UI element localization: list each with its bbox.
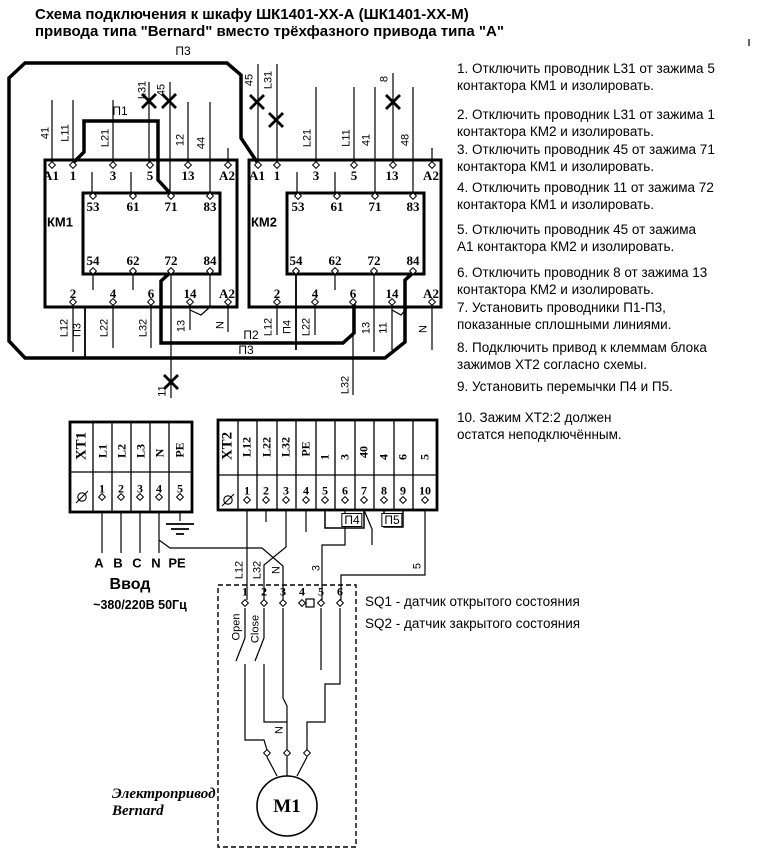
xt2-num-7: 7 — [361, 484, 367, 499]
input-label: Ввод — [110, 576, 151, 594]
km2-contact-62: 62 — [329, 253, 342, 269]
km1-cut-wire-11: 11 — [158, 385, 169, 396]
jumper-p1-label: П1 — [112, 105, 127, 117]
page-title-line1: Схема подключения к шкафу ШК1401-ХХ-А (Ш… — [35, 6, 469, 23]
km2-contact-84: 84 — [407, 253, 420, 269]
km2-wire-48: 48 — [401, 134, 412, 146]
km1-bottom-terminal-a2: A2 — [219, 286, 235, 302]
km2-bottom-terminal-14: 14 — [386, 286, 399, 302]
bernard-caption-line2: Bernard — [112, 803, 164, 820]
phase-pe: PE — [168, 556, 185, 571]
xt2-col-pe: PE — [299, 441, 314, 456]
km2-contact-53: 53 — [292, 199, 305, 215]
phase-n: N — [151, 556, 160, 571]
km2-wire-l32: L32 — [341, 376, 352, 394]
xt2-col-5: 5 — [418, 454, 433, 460]
bernard-terminal-1: 1 — [242, 585, 248, 600]
heater-square-symbol — [306, 599, 314, 607]
km1-contact-61: 61 — [127, 199, 140, 215]
xt2-num-4: 4 — [303, 484, 309, 499]
xt1-col-pe: PE — [173, 442, 188, 457]
jumper-p5-label: П5 — [381, 513, 402, 527]
xt2-col-l22: L22 — [260, 437, 275, 457]
xt2-col-l32: L32 — [279, 437, 294, 457]
xt1-name: XT1 — [74, 432, 91, 460]
km2-wire-8: 8 — [380, 76, 391, 82]
page-title-line2: привода типа "Bernard" вместо трёхфазног… — [35, 23, 504, 40]
km1-contact-72: 72 — [165, 253, 178, 269]
km1-bottom-terminal-2: 2 — [70, 286, 77, 302]
xt1-col-l2: L2 — [115, 444, 130, 458]
instruction-3: 3. Отключить проводник 45 от зажима 71 к… — [457, 141, 757, 175]
xt2-col-1: 1 — [318, 454, 333, 460]
km1-bottom-terminal-14: 14 — [184, 286, 197, 302]
ground-symbol — [166, 524, 194, 534]
km2-wire-l31: L31 — [264, 71, 275, 89]
bernard-wire-5: 5 — [413, 563, 424, 569]
km1-contact-71: 71 — [165, 199, 178, 215]
xt1-col-l3: L3 — [134, 444, 149, 458]
xt2-col-l12: L12 — [240, 437, 255, 457]
km1-wire-n: N — [216, 321, 227, 329]
km1-top-terminal-a1: A1 — [43, 168, 59, 184]
km1-wire-44: 44 — [197, 137, 208, 149]
jumper-p2-label: П2 — [243, 329, 258, 341]
xt1-num-4: 4 — [156, 482, 162, 497]
jumper-p4-label: П4 — [341, 513, 362, 527]
instruction-6: 6. Отключить проводник 8 от зажима 13 ко… — [457, 264, 757, 298]
km1-top-terminal-13: 13 — [182, 168, 195, 184]
km1-wire-l21: L21 — [101, 129, 112, 147]
xt2-col-4: 4 — [377, 454, 392, 460]
bernard-caption-line1: Электропривод — [112, 786, 216, 803]
bernard-close-label: Close — [251, 615, 262, 643]
km1-top-terminal-a2: A2 — [219, 168, 235, 184]
input-voltage: ~380/220В 50Гц — [93, 598, 187, 612]
km1-contact-53: 53 — [87, 199, 100, 215]
bernard-open-label: Open — [232, 614, 243, 641]
xt1-col-n: N — [153, 449, 168, 458]
km2-top-terminal-a1: A1 — [249, 168, 265, 184]
xt1-num-5: 5 — [177, 482, 183, 497]
km2-top-terminal-1: 1 — [274, 168, 281, 184]
km1-wire-l31: L31 — [138, 81, 149, 99]
km2-bottom-terminal-6: 6 — [350, 286, 357, 302]
xt2-num-1: 1 — [244, 484, 250, 499]
xt2-num-5: 5 — [322, 484, 328, 499]
km1-wire-l11: L11 — [61, 124, 72, 142]
km2-contact-83: 83 — [407, 199, 420, 215]
km1-contact-84: 84 — [204, 253, 217, 269]
km2-top-terminal-a2: A2 — [423, 168, 439, 184]
km2-contact-71: 71 — [369, 199, 382, 215]
instruction-1: 1. Отключить проводник L31 от зажима 5 к… — [457, 60, 757, 94]
km2-wire-n: N — [419, 325, 430, 333]
xt1-num-3: 3 — [137, 482, 143, 497]
km2-bottom-terminal-4: 4 — [312, 286, 319, 302]
km1-name: КМ1 — [47, 215, 73, 230]
km1-wire-l12: L12 — [60, 319, 71, 337]
bernard-wire-l12: L12 — [235, 561, 246, 579]
xt2-num-6: 6 — [342, 484, 348, 499]
km2-name: КМ2 — [251, 215, 277, 230]
km1-top-terminal-1: 1 — [70, 168, 77, 184]
km2-top-terminal-3: 3 — [313, 168, 320, 184]
instruction-8: 8. Подключить привод к клеммам блока заж… — [457, 339, 757, 373]
instruction-7: 7. Установить проводники П1-П3, показанн… — [457, 299, 757, 333]
xt1-num-1: 1 — [99, 482, 105, 497]
km1-contact-54: 54 — [87, 253, 100, 269]
phase-c: C — [132, 556, 141, 571]
km2-bottom-terminal-a2: A2 — [423, 286, 439, 302]
km2-wire-l11: L11 — [342, 129, 353, 147]
p1-jumper-wire — [73, 121, 170, 193]
jumper-p3-label-top: П3 — [175, 45, 190, 57]
km2-contact-61: 61 — [331, 199, 344, 215]
km2-wire-p4: П4 — [283, 320, 294, 334]
km1-wire-13: 13 — [177, 320, 188, 332]
bernard-terminal-4: 4 — [299, 585, 305, 600]
legend-sq1: SQ1 - датчик открытого состояния — [365, 594, 580, 609]
km2-bottom-terminal-2: 2 — [274, 286, 281, 302]
instruction-10: 10. Зажим ХТ2:2 должен остатся неподключ… — [457, 409, 757, 443]
km2-wire-45: 45 — [245, 74, 256, 86]
km1-wire-p3: П3 — [73, 323, 84, 337]
km2-wire-41: 41 — [362, 134, 373, 146]
instruction-4: 4. Отключить проводник 11 от зажима 72 к… — [457, 179, 757, 213]
km1-contact-62: 62 — [127, 253, 140, 269]
km2-top-terminal-5: 5 — [351, 168, 358, 184]
xt2-col-6: 6 — [396, 454, 411, 460]
km2-wire-l21: L21 — [303, 129, 314, 147]
xt2-col-40: 40 — [357, 446, 372, 458]
km2-wire-11: 11 — [379, 322, 390, 333]
xt1-num-2: 2 — [118, 482, 124, 497]
bernard-terminal-5: 5 — [318, 585, 324, 600]
xt2-name: XT2 — [220, 432, 237, 460]
km2-contact-72: 72 — [368, 253, 381, 269]
xt2-num-3: 3 — [283, 484, 289, 499]
km2-wire-l12: L12 — [264, 318, 275, 336]
km2-contact-54: 54 — [290, 253, 303, 269]
xt2-num-9: 9 — [400, 484, 406, 499]
schematic-page: Схема подключения к шкафу ШК1401-ХХ-А (Ш… — [0, 0, 757, 853]
instruction-2: 2. Отключить проводник L31 от зажима 1 к… — [457, 106, 757, 140]
bernard-terminal-2: 2 — [261, 585, 267, 600]
km1-bottom-terminal-4: 4 — [110, 286, 117, 302]
xt2-col-3: 3 — [338, 454, 353, 460]
instruction-5: 5. Отключить проводник 45 от зажима А1 к… — [457, 221, 757, 255]
jumper-p3-label-bottom: П3 — [238, 344, 253, 356]
km1-top-terminal-5: 5 — [147, 168, 154, 184]
km1-top-terminal-3: 3 — [110, 168, 117, 184]
km1-contact-83: 83 — [204, 199, 217, 215]
km1-wire-41: 41 — [41, 127, 52, 139]
bernard-wire-l32: L32 — [253, 561, 264, 579]
km1-wire-l32: L32 — [139, 319, 150, 337]
xt1-col-l1: L1 — [96, 444, 111, 458]
km1-wire-l22: L22 — [100, 319, 111, 337]
legend-sq2: SQ2 - датчик закрытого состояния — [365, 616, 580, 631]
km2-wire-l22: L22 — [302, 318, 313, 336]
km1-wire-12: 12 — [176, 134, 187, 146]
phase-a: A — [94, 556, 103, 571]
xt2-num-8: 8 — [381, 484, 387, 499]
xt2-num-2: 2 — [263, 484, 269, 499]
instruction-9: 9. Установить перемычки П4 и П5. — [457, 378, 757, 395]
km1-bottom-terminal-6: 6 — [148, 286, 155, 302]
km2-top-terminal-13: 13 — [386, 168, 399, 184]
bernard-terminal-3: 3 — [280, 585, 286, 600]
bernard-wire-n: N — [272, 566, 283, 574]
phase-b: B — [113, 556, 122, 571]
km1-wire-45: 45 — [157, 84, 168, 96]
motor-m1-label: M1 — [273, 796, 300, 818]
xt2-num-10: 10 — [419, 484, 431, 499]
km2-wire-13: 13 — [362, 322, 373, 334]
bernard-terminal-6: 6 — [337, 585, 343, 600]
bernard-wire-3: 3 — [312, 565, 323, 571]
bernard-neutral-label: N — [275, 726, 286, 734]
